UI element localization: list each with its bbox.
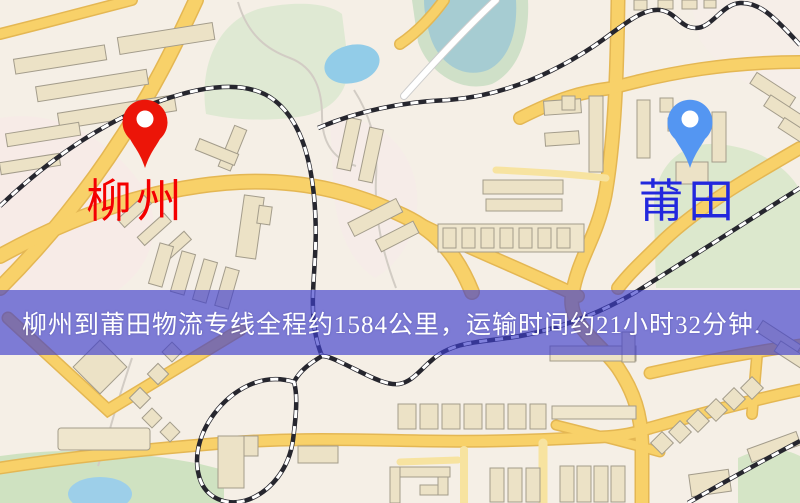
route-info-text: 柳州到莆田物流专线全程约1584公里，运输时间约21小时32分钟. bbox=[0, 305, 761, 341]
logistics-route-map-image: 柳州 莆田 柳州到莆田物流专线全程约1584公里，运输时间约21小时32分钟. bbox=[0, 0, 800, 503]
destination-city-label: 莆田 bbox=[638, 179, 738, 225]
map-canvas bbox=[0, 0, 800, 503]
destination-pin-hole bbox=[682, 111, 699, 128]
route-info-banner: 柳州到莆田物流专线全程约1584公里，运输时间约21小时32分钟. bbox=[0, 290, 800, 355]
origin-city-label: 柳州 bbox=[86, 179, 186, 225]
origin-pin-hole bbox=[137, 111, 154, 128]
